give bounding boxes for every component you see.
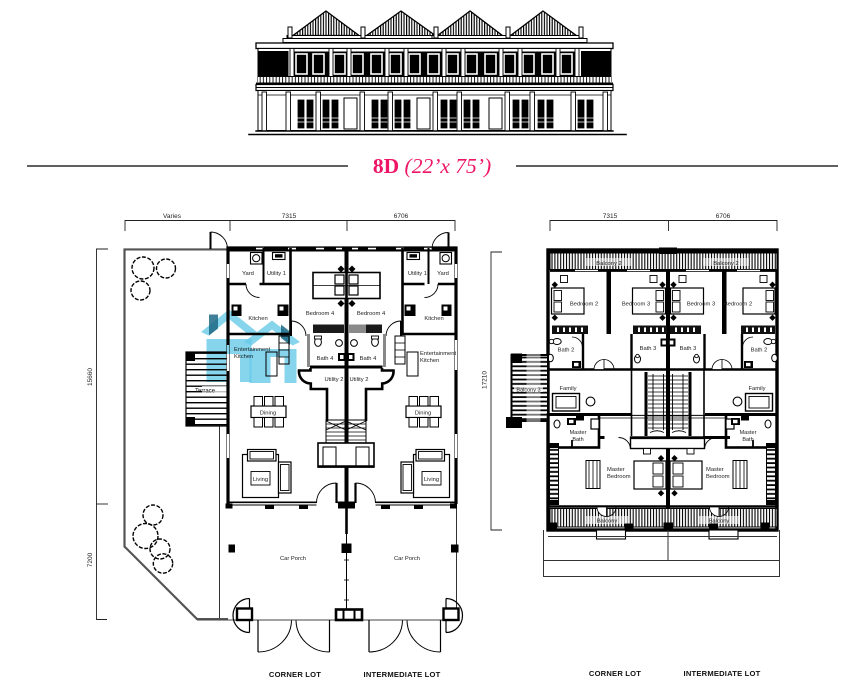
svg-text:6706: 6706 [716,213,731,220]
svg-text:Balcony 3: Balcony 3 [516,388,540,394]
svg-text:7200: 7200 [87,552,94,567]
svg-text:Bath 2: Bath 2 [751,348,768,354]
svg-text:Car Porch: Car Porch [280,556,306,562]
svg-text:7315: 7315 [282,213,297,220]
svg-text:Utility 2: Utility 2 [349,377,368,383]
svg-text:Living: Living [424,477,439,483]
svg-text:Balcony: Balcony [597,519,618,525]
svg-text:Car Porch: Car Porch [394,556,420,562]
svg-text:Family: Family [748,386,765,392]
svg-text:CORNER LOT: CORNER LOT [589,669,641,678]
svg-text:Terrace: Terrace [195,389,216,395]
svg-text:Kitchen: Kitchen [424,316,443,322]
svg-text:Bedroom 3: Bedroom 3 [687,302,715,308]
svg-text:Bedroom 4: Bedroom 4 [306,311,335,317]
svg-text:Kitchen: Kitchen [248,316,267,322]
svg-text:Utility 1: Utility 1 [408,271,427,277]
svg-text:Bedroom 4: Bedroom 4 [357,311,386,317]
svg-text:Bedroom: Bedroom [607,474,631,480]
svg-text:Dining: Dining [415,411,431,417]
svg-text:17210: 17210 [482,371,489,389]
svg-text:Bath 4: Bath 4 [360,356,378,362]
svg-text:Utility 2: Utility 2 [324,377,343,383]
svg-text:Kitchen: Kitchen [420,358,439,364]
svg-text:Master: Master [570,430,587,436]
svg-text:Master: Master [607,467,625,473]
svg-text:Bedroom 3: Bedroom 3 [622,302,650,308]
svg-text:Bedroom 2: Bedroom 2 [570,302,598,308]
svg-text:Bath: Bath [572,437,583,443]
svg-text:Family: Family [559,386,576,392]
svg-text:Bath 4: Bath 4 [317,356,335,362]
svg-text:Entertainment: Entertainment [420,351,456,357]
svg-text:Master: Master [706,467,724,473]
svg-text:Bath 3: Bath 3 [640,346,657,352]
svg-text:7315: 7315 [603,213,618,220]
svg-text:Dining: Dining [260,411,276,417]
svg-text:Bath 2: Bath 2 [558,348,575,354]
svg-text:Yard: Yard [437,271,449,277]
svg-text:Living: Living [253,477,268,483]
svg-text:6706: 6706 [394,213,409,220]
svg-text:Bedroom: Bedroom [706,474,730,480]
svg-text:Master: Master [740,430,757,436]
svg-text:Bath: Bath [742,437,753,443]
svg-text:INTERMEDIATE LOT: INTERMEDIATE LOT [364,670,441,679]
svg-text:Bedroom 2: Bedroom 2 [724,302,752,308]
svg-text:8D (22’x 75’): 8D (22’x 75’) [373,154,491,178]
svg-text:Balcony 2: Balcony 2 [596,261,621,267]
svg-text:15660: 15660 [87,368,94,386]
svg-text:Yard: Yard [242,271,254,277]
svg-text:INTERMEDIATE LOT: INTERMEDIATE LOT [684,669,761,678]
svg-text:CORNER LOT: CORNER LOT [269,670,321,679]
svg-text:Balcony 2: Balcony 2 [713,261,738,267]
svg-text:Utility 1: Utility 1 [267,271,286,277]
svg-text:Varies: Varies [163,213,182,220]
svg-text:Bath 3: Bath 3 [680,346,697,352]
